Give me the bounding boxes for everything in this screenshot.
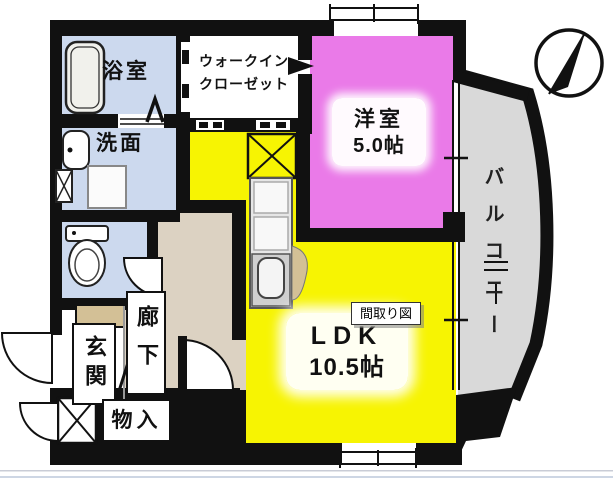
hallway-label-text: 廊下 <box>135 305 157 381</box>
entrance-label-text: 玄関 <box>83 335 105 393</box>
hallway-label: 廊下 <box>126 291 166 395</box>
ldk-size: 10.5帖 <box>309 356 385 380</box>
kitchen-sink-icon <box>258 258 284 298</box>
floorplan-drawing <box>0 0 613 480</box>
washbasin-icon <box>63 131 89 169</box>
entrance-label: 玄関 <box>72 323 116 405</box>
balcony-label: バルコニー <box>482 166 502 351</box>
western-room-label: 洋室 5.0帖 <box>332 98 426 166</box>
wall <box>232 390 246 443</box>
storage-label: 物入 <box>102 399 171 442</box>
western-room-name: 洋室 <box>354 109 404 130</box>
wic-door-dash <box>276 122 286 128</box>
page-edge-line <box>0 476 613 478</box>
washroom-label: 洗面 <box>96 133 144 154</box>
wic-door-dash <box>182 84 189 98</box>
floorplan-tooltip: 間取り図 <box>351 302 421 325</box>
storage-label-text: 物入 <box>112 410 162 431</box>
kitchen-counter-segment <box>254 217 288 250</box>
floorplan-image[interactable]: 浴室 洗面 ウォークインクローゼット 洋室 5.0帖 LDK 10.5帖 バルコ… <box>0 0 613 480</box>
page-edge-line <box>0 470 613 472</box>
washer-space-icon <box>88 166 126 208</box>
wall <box>298 20 312 60</box>
wic-door-dash <box>182 50 189 64</box>
washbasin-faucet <box>68 148 73 153</box>
wall <box>296 228 456 242</box>
bath-label: 浴室 <box>102 61 150 82</box>
walk-in-closet-label-line1: ウォークイン <box>199 53 289 69</box>
wall <box>232 213 246 340</box>
toilet-flush-button <box>72 231 76 235</box>
wall <box>50 20 312 36</box>
western-room-size: 5.0帖 <box>353 136 405 156</box>
wall <box>180 200 246 213</box>
wall <box>50 443 342 465</box>
compass-icon <box>536 30 602 96</box>
kitchen-counter-segment <box>254 182 288 213</box>
ldk-name: LDK <box>311 324 383 349</box>
wall <box>62 114 118 128</box>
wall <box>416 443 462 465</box>
wic-door-dash <box>260 122 270 128</box>
wic-door-dash <box>199 122 208 128</box>
wall <box>62 210 180 222</box>
wall <box>298 74 312 134</box>
wall <box>418 20 448 36</box>
wall <box>296 132 310 232</box>
walk-in-closet-label-line2: クローゼット <box>199 76 289 92</box>
wall <box>147 222 158 258</box>
walk-in-closet-label: ウォークインクローゼット <box>189 50 299 96</box>
wall <box>443 212 465 242</box>
ldk-door-leaf <box>178 336 187 393</box>
wic-door-dash <box>213 122 222 128</box>
